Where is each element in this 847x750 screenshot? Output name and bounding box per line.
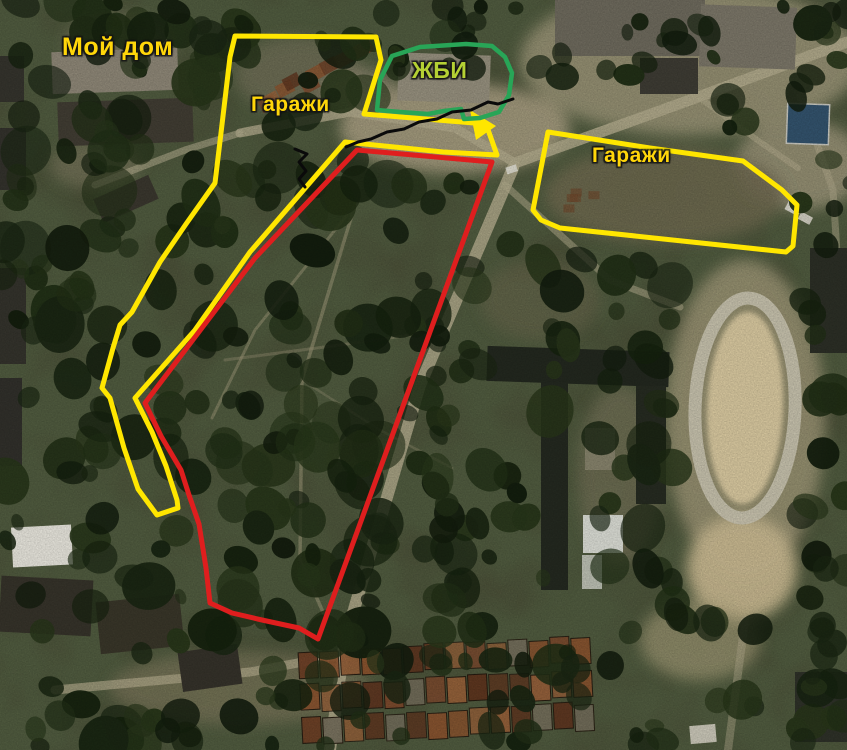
satellite-map: Мой дом Гаражи ЖБИ Гаражи (0, 0, 847, 750)
map-image (0, 0, 847, 750)
label-garages-right: Гаражи (592, 145, 671, 166)
label-my-house: Мой дом (62, 35, 173, 60)
label-garages-left: Гаражи (251, 94, 330, 115)
label-zhbi: ЖБИ (412, 59, 467, 82)
